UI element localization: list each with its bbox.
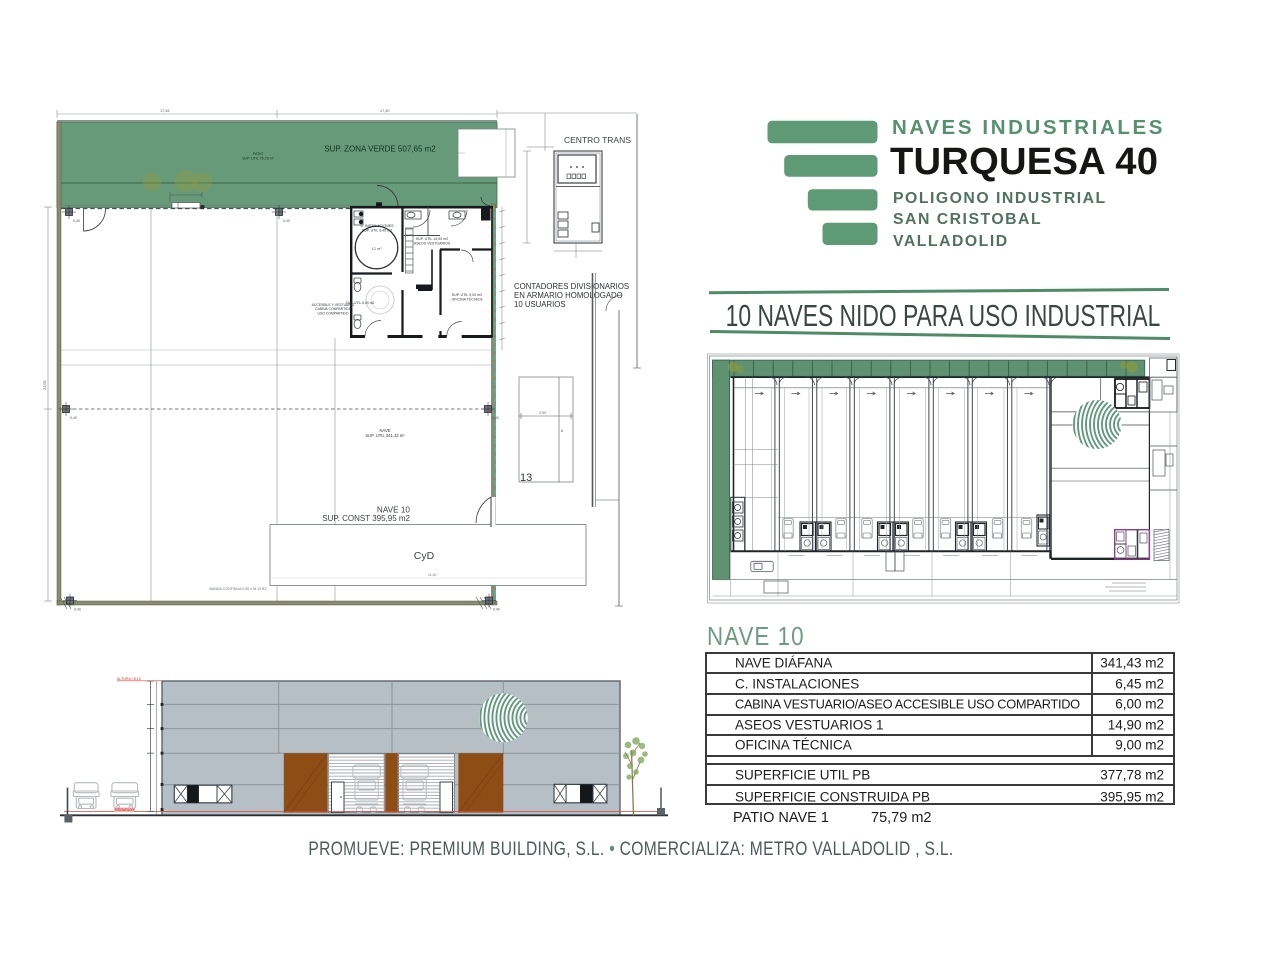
svg-text:BANDA CONTINUA 0,50 x M 10 B2: BANDA CONTINUA 0,50 x M 10 B2 xyxy=(210,587,267,591)
svg-text:SUP. UTIL 75,79 m²: SUP. UTIL 75,79 m² xyxy=(242,157,275,161)
svg-text:SUP. CONST 395,95 m2: SUP. CONST 395,95 m2 xyxy=(322,514,410,523)
svg-text:CONTADORES DIVISIONARIOS: CONTADORES DIVISIONARIOS xyxy=(514,282,629,291)
svg-text:17,30: 17,30 xyxy=(380,109,390,113)
svg-text:24,05: 24,05 xyxy=(43,380,47,390)
svg-text:2,00: 2,00 xyxy=(539,411,546,415)
svg-text:PATIO: PATIO xyxy=(253,152,263,156)
svg-text:0,40: 0,40 xyxy=(73,219,80,223)
svg-text:ASEOS VESTUARIOS: ASEOS VESTUARIOS xyxy=(414,241,451,245)
svg-text:CyD: CyD xyxy=(414,550,435,562)
svg-text:OFICINA TÉCNICA: OFICINA TÉCNICA xyxy=(451,296,483,301)
svg-text:13: 13 xyxy=(520,472,532,484)
svg-text:SUP. UTIL 341,43 m²: SUP. UTIL 341,43 m² xyxy=(365,433,405,438)
svg-text:USO COMPARTIDO: USO COMPARTIDO xyxy=(318,311,349,315)
svg-text:EN ARMARIO HOMOLOGADO: EN ARMARIO HOMOLOGADO xyxy=(514,291,623,300)
svg-text:SUP. UTIL 9,00 m2: SUP. UTIL 9,00 m2 xyxy=(452,293,483,297)
svg-text:17,45: 17,45 xyxy=(160,109,170,113)
svg-text:SUP. ZONA VERDE 507,65 m2: SUP. ZONA VERDE 507,65 m2 xyxy=(324,145,436,154)
svg-text:0,40: 0,40 xyxy=(493,608,500,612)
svg-text:0,40: 0,40 xyxy=(283,219,290,223)
svg-text:6: 6 xyxy=(561,429,563,433)
svg-text:ALTURA +8,10: ALTURA +8,10 xyxy=(117,677,141,681)
svg-text:Showroom: Showroom xyxy=(115,807,136,812)
svg-text:C. INSTALACIONES: C. INSTALACIONES xyxy=(360,224,394,228)
svg-text:SUP. UTIL 14,90 m2: SUP. UTIL 14,90 m2 xyxy=(416,237,449,241)
svg-text:11,40: 11,40 xyxy=(428,573,437,577)
svg-text:0,40: 0,40 xyxy=(492,416,499,420)
svg-text:12 m³: 12 m³ xyxy=(372,247,382,251)
svg-text:0,40: 0,40 xyxy=(74,608,81,612)
svg-text:SUP. UTIL 6,45 m2: SUP. UTIL 6,45 m2 xyxy=(362,228,393,232)
svg-text:10 USUARIOS: 10 USUARIOS xyxy=(514,300,566,309)
svg-text:0,40: 0,40 xyxy=(70,416,77,420)
svg-text:CENTRO TRANS: CENTRO TRANS xyxy=(564,135,631,145)
